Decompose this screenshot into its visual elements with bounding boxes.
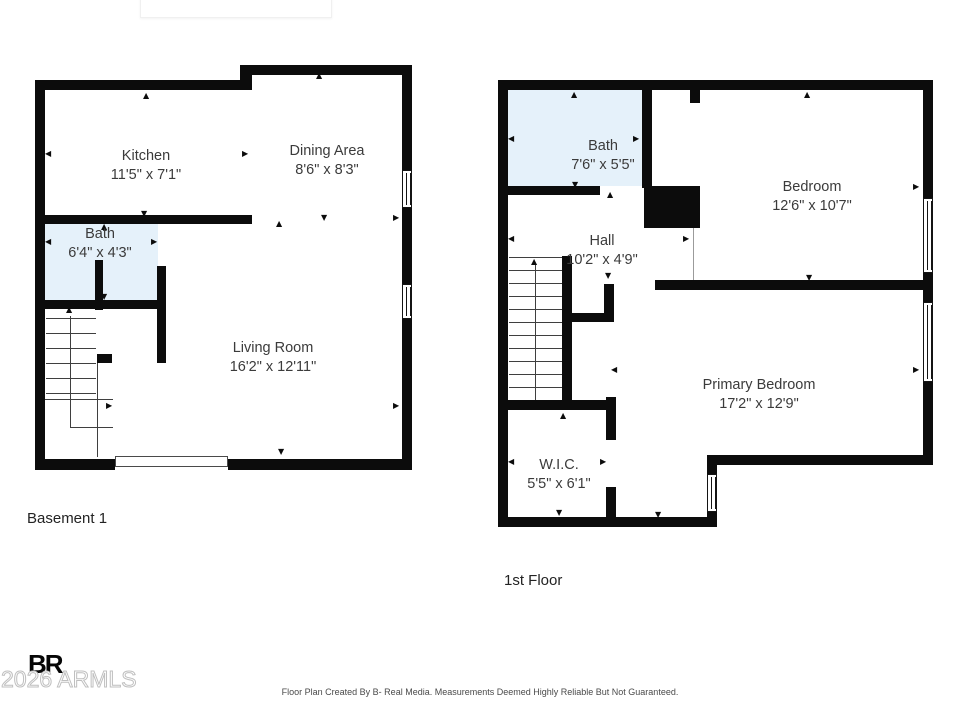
wall-segment <box>707 455 933 465</box>
room-dims: 10'2" x 4'9" <box>566 251 637 270</box>
room-dims: 12'6" x 10'7" <box>772 197 852 216</box>
dimension-arrow-icon: ◀ <box>245 214 251 222</box>
dimension-arrow-icon: ▶ <box>913 366 919 374</box>
wall-segment <box>402 65 412 470</box>
dimension-arrow-icon: ▲ <box>804 91 810 99</box>
wall-segment <box>604 284 614 322</box>
wall-segment <box>45 300 166 309</box>
stair-tread <box>46 348 96 349</box>
stair-tread <box>46 393 96 394</box>
dimension-arrow-icon: ▶ <box>151 238 157 246</box>
dimension-arrow-icon: ▲ <box>276 220 282 228</box>
room-name: Hall <box>566 232 637 251</box>
door-opening-symbol <box>115 456 228 467</box>
opening-edge-line <box>693 228 694 280</box>
wall-segment <box>502 400 608 410</box>
window-symbol <box>923 302 933 382</box>
window-symbol <box>402 170 412 208</box>
room-name: W.I.C. <box>527 456 590 475</box>
room-dims: 16'2" x 12'11" <box>230 358 317 377</box>
wall-segment <box>35 459 115 470</box>
dimension-arrow-icon: ▲ <box>316 72 322 80</box>
dimension-arrow-icon: ◀ <box>508 458 514 466</box>
room-name: Bath <box>571 137 634 156</box>
chimney-block <box>644 186 700 228</box>
wall-segment <box>498 80 933 90</box>
dimension-arrow-icon: ▼ <box>605 272 611 280</box>
room-dims: 7'6" x 5'5" <box>571 156 634 175</box>
dimension-arrow-icon: ◀ <box>508 235 514 243</box>
wall-segment <box>606 397 616 440</box>
wall-segment <box>157 266 166 363</box>
room-dims: 6'4" x 4'3" <box>68 244 131 263</box>
disclaimer-text: Floor Plan Created By B- Real Media. Mea… <box>0 687 960 697</box>
dimension-arrow-icon: ▶ <box>393 214 399 222</box>
dimension-arrow-icon: ▼ <box>655 511 661 519</box>
dimension-arrow-icon: ▶ <box>106 402 112 410</box>
dimension-arrow-icon: ▼ <box>278 448 284 456</box>
wall-segment <box>642 90 652 188</box>
wall-segment <box>240 65 412 75</box>
stair-walk-line <box>535 264 536 400</box>
dimension-arrow-icon: ▼ <box>806 274 812 282</box>
dimension-arrow-icon: ▶ <box>242 150 248 158</box>
dimension-arrow-icon: ▼ <box>141 210 147 218</box>
stair-edge-line <box>97 363 98 457</box>
dimension-arrow-icon: ▲ <box>560 412 566 420</box>
wall-segment <box>508 186 600 195</box>
stair-walk-line <box>70 316 71 427</box>
dimension-arrow-icon: ▼ <box>321 214 327 222</box>
plan-title-first-floor: 1st Floor <box>504 572 562 589</box>
dimension-arrow-icon: ▶ <box>600 458 606 466</box>
dimension-arrow-icon: ◀ <box>45 238 51 246</box>
wall-segment <box>655 280 933 290</box>
room-name: Living Room <box>230 339 317 358</box>
dimension-arrow-icon: ▶ <box>683 235 689 243</box>
wall-segment <box>35 80 45 470</box>
stair-tread <box>46 318 96 319</box>
window-symbol <box>923 198 933 273</box>
room-label: Hall 10'2" x 4'9" <box>566 232 637 270</box>
room-label: Dining Area 8'6" x 8'3" <box>290 142 365 180</box>
blank-label-box <box>140 0 332 18</box>
room-dims: 11'5" x 7'1" <box>111 166 181 185</box>
room-label: Bedroom 12'6" x 10'7" <box>772 178 852 216</box>
wall-segment <box>498 80 508 527</box>
room-label: Bath 7'6" x 5'5" <box>571 137 634 175</box>
room-name: Dining Area <box>290 142 365 161</box>
room-name: Kitchen <box>111 147 181 166</box>
window-symbol <box>402 284 412 319</box>
stair-direction-arrow-icon: ▲ <box>531 258 537 266</box>
wall-segment <box>606 487 616 527</box>
room-label: Living Room 16'2" x 12'11" <box>230 339 317 377</box>
wall-segment <box>97 354 112 363</box>
room-dims: 5'5" x 6'1" <box>527 475 590 494</box>
dimension-arrow-icon: ▶ <box>393 402 399 410</box>
wall-segment <box>228 459 412 470</box>
room-label: Bath 6'4" x 4'3" <box>68 225 131 263</box>
dimension-arrow-icon: ▶ <box>913 183 919 191</box>
dimension-arrow-icon: ▼ <box>556 509 562 517</box>
room-label: W.I.C. 5'5" x 6'1" <box>527 456 590 494</box>
room-name: Bath <box>68 225 131 244</box>
stair-tread <box>46 378 96 379</box>
stair-landing-line <box>45 399 113 400</box>
room-name: Bedroom <box>772 178 852 197</box>
wall-segment <box>562 256 572 400</box>
dimension-arrow-icon: ▲ <box>571 91 577 99</box>
wall-segment <box>45 215 252 224</box>
dimension-arrow-icon: ▼ <box>101 293 107 301</box>
room-dims: 17'2" x 12'9" <box>703 395 816 414</box>
dimension-arrow-icon: ▼ <box>572 181 578 189</box>
stair-tread <box>46 333 96 334</box>
floor-plan-canvas: ▲ ▲ ◀ ▶ ▲ ▲ ▼ ▶ ▼ ◀ ▲ ◀ ▶ ▼ ▶ ▶ ▼ Kitche… <box>0 0 960 720</box>
plan-title-basement: Basement 1 <box>27 510 107 527</box>
stair-walk-line <box>70 427 113 428</box>
wall-segment <box>35 80 250 90</box>
stair-tread <box>46 363 96 364</box>
window-symbol <box>707 474 717 512</box>
room-label: Primary Bedroom 17'2" x 12'9" <box>703 376 816 414</box>
stair-direction-arrow-icon: ▲ <box>66 306 72 314</box>
dimension-arrow-icon: ◀ <box>45 150 51 158</box>
dimension-arrow-icon: ◀ <box>611 366 617 374</box>
dimension-arrow-icon: ◀ <box>508 135 514 143</box>
dimension-arrow-icon: ▲ <box>607 191 613 199</box>
wall-segment <box>690 90 700 103</box>
room-name: Primary Bedroom <box>703 376 816 395</box>
dimension-arrow-icon: ▲ <box>143 92 149 100</box>
room-label: Kitchen 11'5" x 7'1" <box>111 147 181 185</box>
room-dims: 8'6" x 8'3" <box>290 161 365 180</box>
